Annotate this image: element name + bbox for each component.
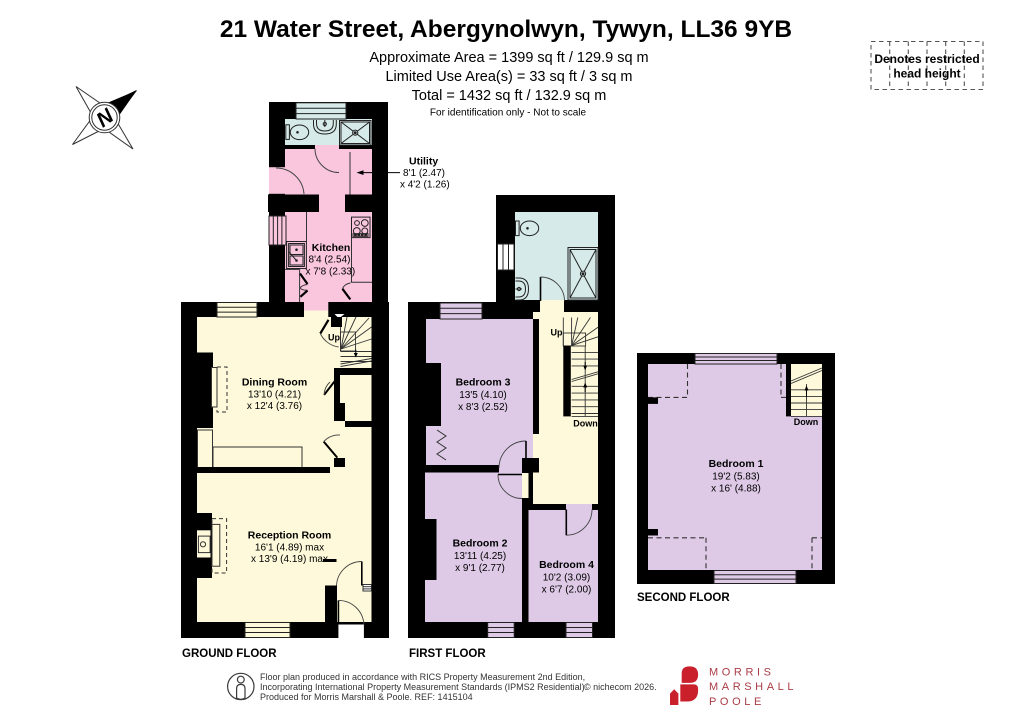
svg-text:Up: Up: [328, 333, 340, 343]
svg-text:Limited Use Area(s) = 33 sq ft: Limited Use Area(s) = 33 sq ft / 3 sq m: [385, 69, 632, 85]
svg-text:x 13'9 (4.19) max: x 13'9 (4.19) max: [251, 554, 328, 565]
svg-text:Approximate Area = 1399 sq ft: Approximate Area = 1399 sq ft / 129.9 sq…: [369, 50, 648, 66]
svg-text:x 12'4 (3.76): x 12'4 (3.76): [247, 401, 302, 412]
svg-text:Denotes restricted: Denotes restricted: [874, 52, 979, 66]
svg-text:Floor plan produced in accorda: Floor plan produced in accordance with R…: [260, 672, 585, 682]
svg-text:Down: Down: [573, 419, 598, 429]
svg-text:13'11 (4.25): 13'11 (4.25): [454, 551, 506, 562]
svg-text:8'1 (2.47): 8'1 (2.47): [403, 168, 445, 179]
svg-text:13'5 (4.10): 13'5 (4.10): [459, 390, 507, 401]
svg-text:x 4'2 (1.26): x 4'2 (1.26): [400, 179, 450, 190]
svg-text:10'2 (3.09): 10'2 (3.09): [543, 572, 591, 583]
svg-text:SECOND FLOOR: SECOND FLOOR: [637, 592, 730, 604]
svg-text:Bedroom 1: Bedroom 1: [709, 458, 764, 470]
svg-text:Bedroom 2: Bedroom 2: [453, 538, 508, 550]
svg-text:x 6'7 (2.00): x 6'7 (2.00): [542, 585, 592, 596]
svg-text:MORRIS: MORRIS: [709, 666, 775, 678]
svg-text:8'4 (2.54): 8'4 (2.54): [309, 255, 351, 266]
svg-text:x 9'1 (2.77): x 9'1 (2.77): [455, 563, 505, 574]
svg-text:MARSHALL: MARSHALL: [709, 681, 797, 693]
svg-text:21 Water Street, Abergynolwyn,: 21 Water Street, Abergynolwyn, Tywyn, LL…: [220, 16, 792, 43]
svg-text:x 8'3 (2.52): x 8'3 (2.52): [458, 402, 508, 413]
svg-text:Down: Down: [794, 417, 819, 427]
svg-text:x 7'8 (2.33): x 7'8 (2.33): [305, 266, 355, 277]
svg-text:© nichecom 2026.: © nichecom 2026.: [584, 682, 657, 692]
svg-text:Bedroom 3: Bedroom 3: [456, 377, 511, 389]
svg-text:FIRST FLOOR: FIRST FLOOR: [409, 648, 486, 660]
svg-text:Reception Room: Reception Room: [248, 530, 331, 542]
svg-text:Incorporating International Pr: Incorporating International Property Mea…: [260, 682, 587, 692]
svg-text:13'10 (4.21): 13'10 (4.21): [248, 389, 301, 400]
svg-text:For identification only - Not: For identification only - Not to scale: [430, 108, 587, 119]
svg-text:Up: Up: [551, 328, 563, 338]
svg-text:GROUND FLOOR: GROUND FLOOR: [182, 648, 277, 660]
svg-text:Bedroom 4: Bedroom 4: [539, 559, 594, 571]
svg-text:head height: head height: [893, 66, 960, 80]
svg-text:19'2 (5.83): 19'2 (5.83): [712, 471, 760, 482]
svg-text:16'1 (4.89) max: 16'1 (4.89) max: [255, 542, 324, 553]
svg-text:Kitchen: Kitchen: [312, 242, 351, 254]
svg-text:Total = 1432 sq ft / 132.9 sq: Total = 1432 sq ft / 132.9 sq m: [412, 88, 607, 104]
svg-text:x 16' (4.88): x 16' (4.88): [711, 484, 761, 495]
svg-text:Dining Room: Dining Room: [242, 377, 307, 389]
svg-text:Produced for Morris Marshall &: Produced for Morris Marshall & Poole. RE…: [260, 692, 473, 702]
svg-text:Utility: Utility: [409, 156, 438, 168]
svg-text:POOLE: POOLE: [709, 696, 765, 708]
